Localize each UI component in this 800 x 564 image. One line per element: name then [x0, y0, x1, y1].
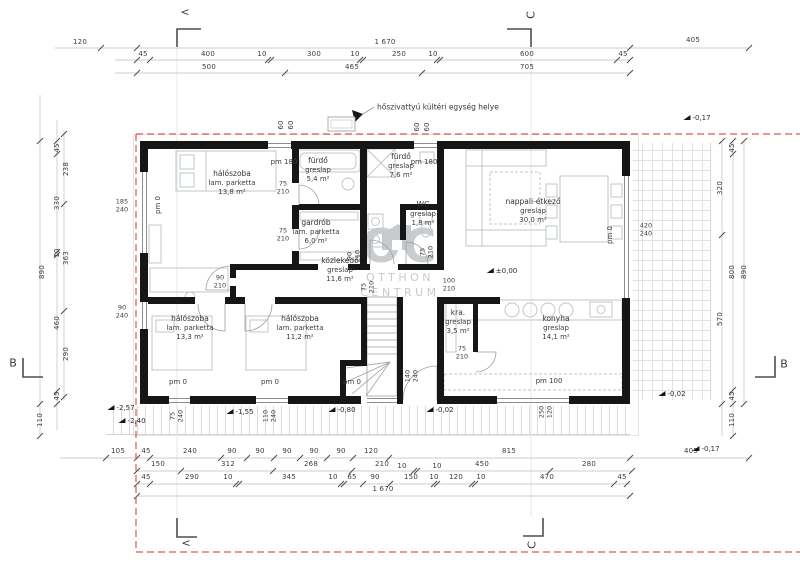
staircase [346, 297, 397, 396]
property-boundary [136, 134, 800, 552]
heat-pump-unit [328, 107, 374, 131]
plan-linework [0, 0, 800, 564]
heat-pump-note: hőszivattyú kültéri egység helye [377, 103, 499, 112]
floor-plan-drawing: OC OTTHON CENTRUM [0, 0, 800, 564]
